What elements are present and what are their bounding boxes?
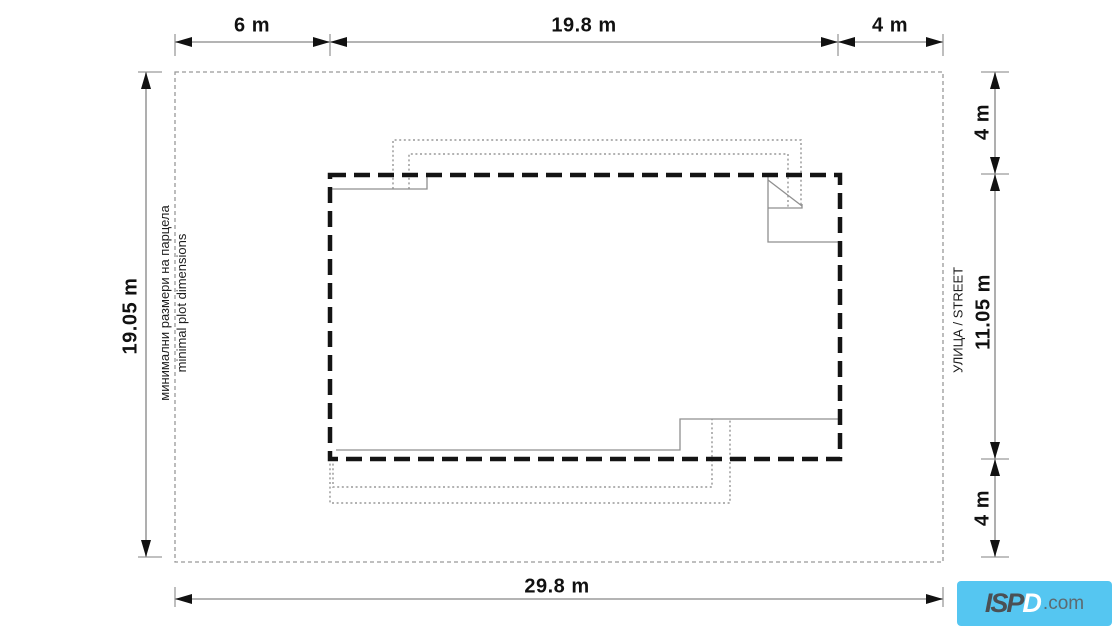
dim-label-right-top: 4 m [972, 104, 995, 140]
plot-note-english: minimal plot dimensions [174, 205, 191, 400]
arrow-right-icon [926, 594, 943, 604]
arrow-left-icon [175, 37, 192, 47]
dim-label-right-middle: 11.05 m [973, 274, 996, 350]
arrow-left-icon [838, 37, 855, 47]
dim-label-top-right: 4 m [872, 15, 908, 38]
plot-plan-page: 6 m 19.8 m 4 m 19.05 m 4 m 11.05 m 4 m 2… [0, 0, 1120, 632]
plot-boundary-line [175, 72, 943, 562]
site-logo: ISP D .com [957, 581, 1112, 626]
roof-outline-top-inner [409, 154, 788, 207]
arrow-up-icon [990, 72, 1000, 89]
logo-domain: .com [1043, 593, 1084, 615]
dim-label-right-bottom: 4 m [972, 490, 995, 526]
plot-dimensions-note: минимални размери на парцела minimal plo… [157, 205, 191, 400]
arrow-down-icon [990, 157, 1000, 174]
arrow-up-icon [141, 72, 151, 89]
arrow-up-icon [990, 174, 1000, 191]
dim-label-top-middle: 19.8 m [551, 15, 616, 38]
dim-label-bottom: 29.8 m [524, 576, 589, 599]
logo-text-dark: ISP [985, 588, 1023, 619]
building-outline-bottom [336, 419, 838, 450]
roof-outline-bottom-inner [333, 419, 712, 487]
arrow-left-icon [175, 594, 192, 604]
building-outline-stair-diagonal [768, 180, 802, 206]
arrow-down-icon [990, 540, 1000, 557]
arrow-right-icon [821, 37, 838, 47]
arrow-down-icon [990, 442, 1000, 459]
building-outline-stair-step [768, 204, 802, 208]
street-label: УЛИЦА / STREET [951, 267, 968, 373]
plot-note-bulgarian: минимални размери на парцела [157, 205, 174, 400]
dim-label-left: 19.05 m [120, 278, 143, 355]
arrow-down-icon [141, 540, 151, 557]
arrow-up-icon [990, 459, 1000, 476]
building-envelope-line [330, 175, 840, 459]
logo-text-light: D [1022, 588, 1041, 619]
dim-label-top-left: 6 m [234, 15, 270, 38]
arrow-right-icon [926, 37, 943, 47]
arrow-left-icon [330, 37, 347, 47]
arrow-right-icon [313, 37, 330, 47]
